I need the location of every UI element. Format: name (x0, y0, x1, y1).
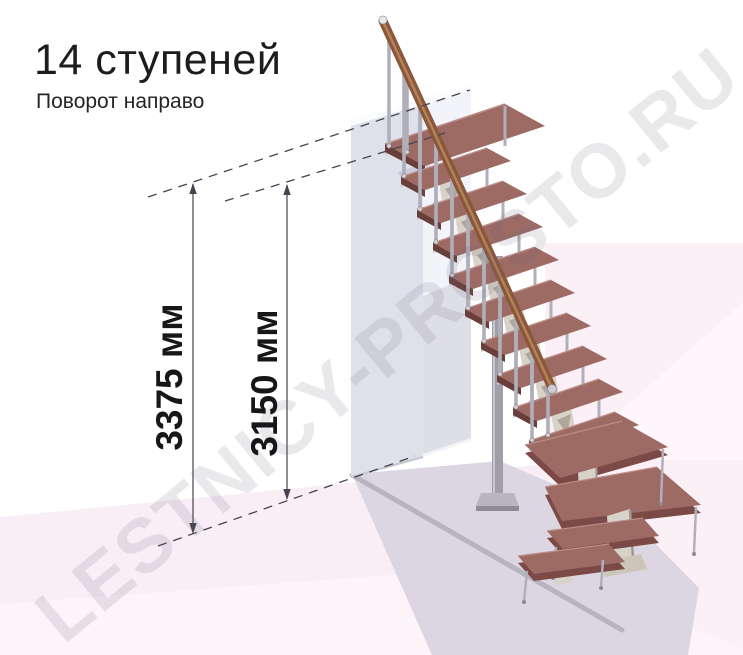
baluster-foot-ball (450, 273, 454, 277)
wall-lower-shadow (423, 276, 471, 454)
handrail-end-cap (548, 385, 557, 394)
baluster-foot-ball (514, 405, 518, 409)
support-column-base-side (476, 506, 519, 511)
baluster-foot-ball (402, 174, 406, 178)
handrail-top-cap (379, 16, 387, 24)
dimension-arrow-up (189, 183, 196, 194)
page-subtitle: Поворот направо (36, 90, 204, 114)
baluster-foot-ball (482, 339, 486, 343)
baluster-foot-ball (434, 240, 438, 244)
dimension-label-last-step-height: 3150 мм (244, 309, 286, 456)
baluster-foot-ball (546, 433, 550, 437)
stage: LESTNICY-PROSTO.RU 14 ступеней Поворот н… (0, 0, 743, 655)
page-title: 14 ступеней (34, 36, 281, 85)
baluster-foot-ball (387, 144, 391, 148)
baluster-foot-ball (530, 438, 534, 442)
dimension-arrow-up (283, 184, 290, 195)
post-foot (692, 552, 696, 556)
dimension-label-total-height: 3375 мм (149, 303, 191, 450)
support-column-base (476, 493, 519, 506)
baluster-foot-ball (466, 306, 470, 310)
baluster-foot-ball (498, 372, 502, 376)
post-foot (659, 502, 663, 506)
leg-foot (522, 600, 526, 604)
baluster-foot-ball (418, 207, 422, 211)
leg-foot (599, 586, 603, 590)
